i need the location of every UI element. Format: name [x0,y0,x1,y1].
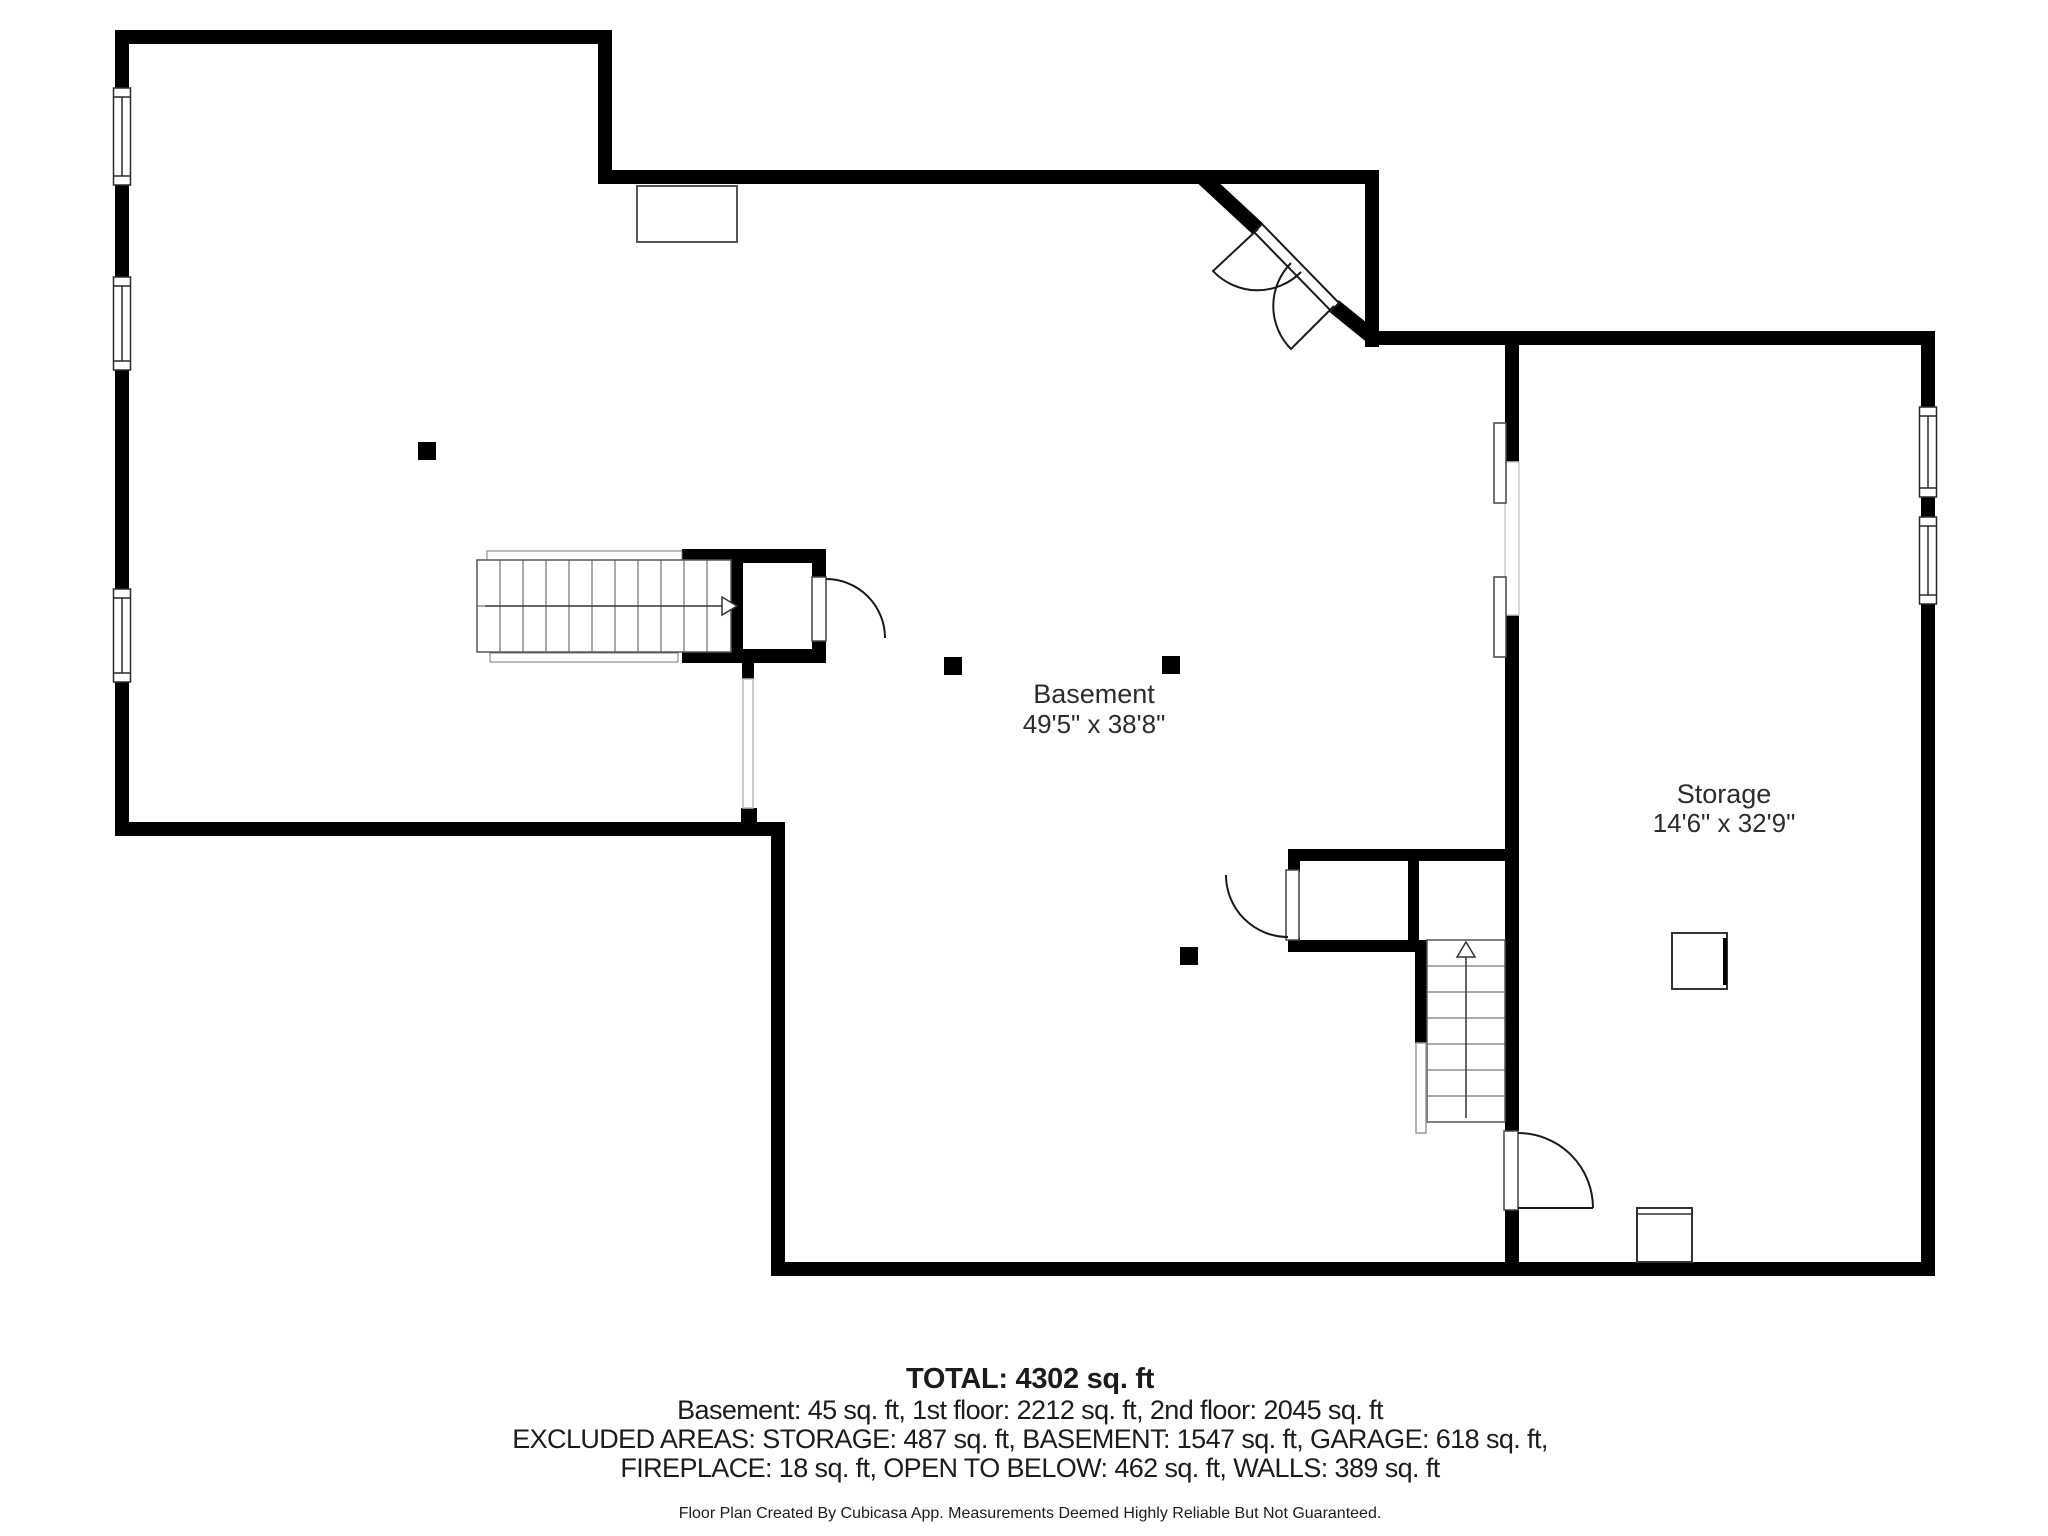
floor-plan-svg: Basement 49'5" x 38'8" Storage 14'6" x 3… [0,0,2048,1536]
basement-dimensions: 49'5" x 38'8" [1023,709,1166,739]
floor-areas-text: Basement: 45 sq. ft, 1st floor: 2212 sq.… [0,1396,2048,1425]
stair-railing [1416,1043,1426,1133]
excluded-areas-text-1: EXCLUDED AREAS: STORAGE: 487 sq. ft, BAS… [0,1425,2048,1454]
storage-fixture-1 [1672,933,1727,989]
wall-bottom [771,1262,1935,1276]
wall-top-left-room [115,30,612,44]
wall-left-a [115,30,129,88]
railing-post [741,808,757,824]
wall-left-c [115,370,129,589]
wall-railing-stub [742,663,754,679]
stair-stringer-top [487,551,682,560]
wall-mid-horizontal [115,822,785,836]
storage-label: Storage [1677,779,1772,809]
basement-label: Basement [1033,679,1155,709]
sliding-panel [1494,577,1506,657]
wall-opening [1505,462,1519,615]
wall-top-middle [598,170,1379,184]
door-leaf [1286,870,1299,940]
sliding-panel [1494,423,1506,503]
column-post [1180,947,1198,965]
floor-plan-page: Basement 49'5" x 38'8" Storage 14'6" x 3… [0,0,2048,1536]
stairs-lower [1416,940,1505,1133]
wall-storage-top [1365,331,1935,345]
wall-diagonal-upper [1203,178,1258,229]
excluded-areas-text-2: FIREPLACE: 18 sq. ft, OPEN TO BELOW: 462… [0,1454,2048,1483]
railing-wall [743,679,753,808]
wall-dividing-a [1505,345,1519,462]
window-storage-1 [1920,407,1937,497]
door-storage [1504,1131,1593,1210]
window-storage-2 [1920,517,1937,604]
storage-dimensions: 14'6" x 32'9" [1653,808,1796,838]
column-post [418,442,436,460]
door-stair-landing [812,577,885,641]
wall-step-vertical [598,30,612,184]
double-door-diagonal [1213,224,1339,349]
wall-corner-right [1365,170,1379,347]
window-left-2 [114,277,131,370]
window-left-1 [114,88,131,185]
door-leaf [1504,1131,1518,1210]
column-post [1162,656,1180,674]
wall-storage-right-b [1921,497,1935,517]
wall-storage-right-c [1921,604,1935,1276]
wall-dividing-c [1505,1208,1519,1262]
wall-smallrooms-top [1288,849,1519,861]
wall-smallroom-bottom [1288,940,1427,952]
total-area-text: TOTAL: 4302 sq. ft [0,1362,2048,1396]
door-leaf [1254,224,1339,311]
door-swing-arc [1226,875,1288,937]
interior-walls [682,345,1519,1262]
footer: TOTAL: 4302 sq. ft Basement: 45 sq. ft, … [0,1362,2048,1523]
wall-dividing-b [1505,615,1519,1131]
storage-fixture-2 [1637,1208,1692,1262]
wall-left-d [115,682,129,836]
wall-storage-right-a [1921,331,1935,407]
stair-stringer-bottom [490,653,678,662]
wall-left-b [115,185,129,277]
door-leaf [812,577,826,641]
window-left-3 [114,589,131,682]
furniture [637,186,1727,1262]
door-small-room [1226,870,1299,940]
stairs-main [477,551,737,662]
wall-left-step [771,822,785,1276]
door-swing-arc [1518,1133,1593,1208]
column-post [944,657,962,675]
wall-smallroom-left-a [1288,849,1300,872]
exterior-walls [115,30,1935,1276]
fixture-under-top-wall [637,186,737,242]
disclaimer-text: Floor Plan Created By Cubicasa App. Meas… [0,1505,2048,1523]
door-swing-arc [826,579,885,638]
room-labels: Basement 49'5" x 38'8" Storage 14'6" x 3… [1023,679,1796,838]
wall-smallroom-partition [1408,849,1419,940]
wall-stairwell-left [1415,952,1427,1043]
